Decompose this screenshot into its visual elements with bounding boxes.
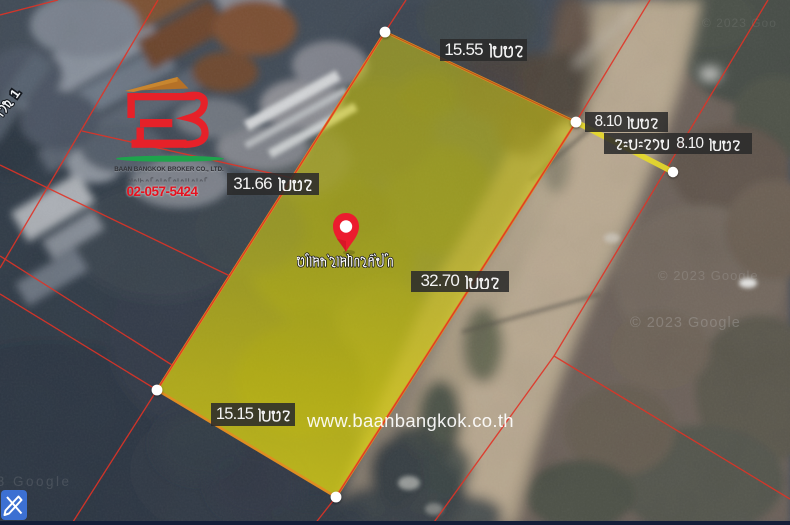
svg-text:1: 1 bbox=[7, 86, 23, 101]
